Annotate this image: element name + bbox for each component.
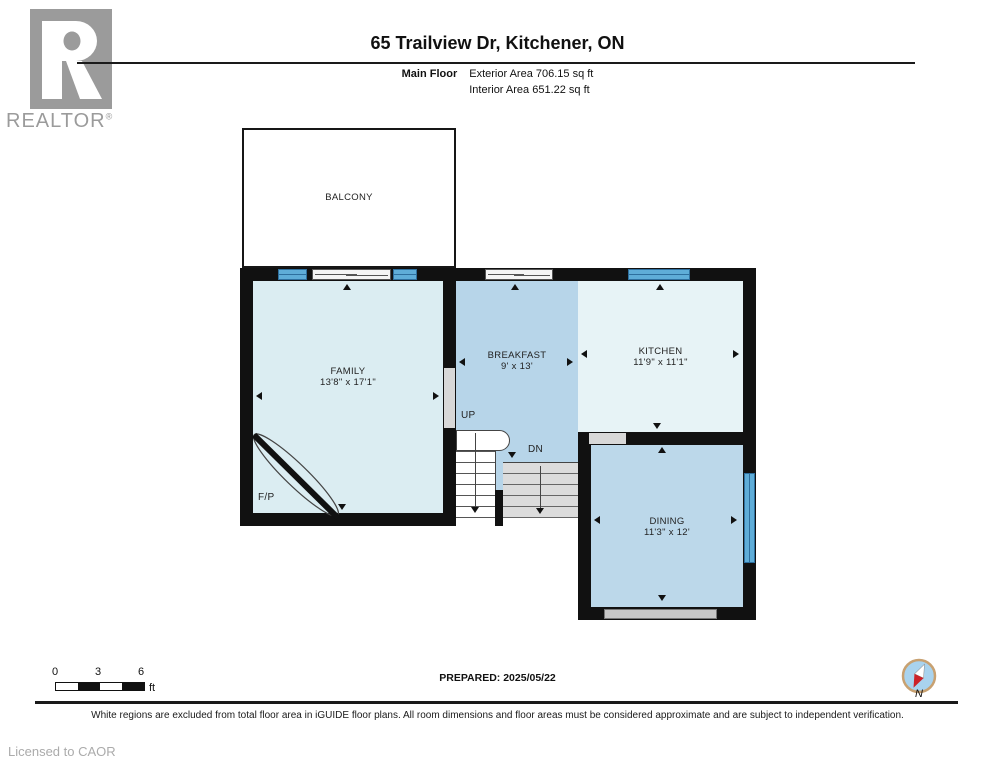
- floor-summary: Main Floor Exterior Area 706.15 sq ft In…: [0, 68, 995, 96]
- stairs-down-walkline: [540, 466, 541, 508]
- breakfast-label: BREAKFAST9' x 13': [456, 350, 578, 372]
- dining-arrow-left-icon: [594, 516, 600, 524]
- breakfast-arrow-right-icon: [567, 358, 573, 366]
- compass-north-label: N: [906, 688, 932, 700]
- family-label: FAMILY13'8" x 17'1": [253, 366, 443, 388]
- dining-window: [744, 473, 755, 563]
- stairs-up-walkline: [475, 433, 476, 507]
- kitchen-arrow-up-icon: [656, 284, 664, 290]
- exterior-area: Exterior Area 706.15 sq ft: [469, 68, 593, 80]
- down-label: DN: [528, 444, 543, 455]
- stairs-bullnose: [456, 430, 510, 451]
- balcony-label: BALCONY: [242, 192, 456, 203]
- family-arrow-down-icon: [338, 504, 346, 510]
- dining-label: DINING11'3" x 12': [591, 516, 743, 538]
- dining-arrow-up-icon: [658, 447, 666, 453]
- up-label: UP: [461, 410, 476, 421]
- wall-dining-left: [578, 432, 591, 620]
- footer-divider: [35, 701, 958, 704]
- opening-family-breakfast: [444, 368, 455, 428]
- floor-plan-page: REALTOR® 65 Trailview Dr, Kitchener, ON …: [0, 0, 995, 768]
- disclaimer-text: White regions are excluded from total fl…: [20, 710, 975, 721]
- page-title: 65 Trailview Dr, Kitchener, ON: [0, 33, 995, 54]
- prepared-date: PREPARED: 2025/05/22: [0, 672, 995, 684]
- family-window-right: [393, 269, 417, 280]
- header-divider: [77, 62, 915, 64]
- family-window-left: [278, 269, 307, 280]
- wall-kitchen-right: [743, 268, 756, 445]
- realtor-wordmark: REALTOR®: [6, 110, 113, 133]
- stair-wall-stub: [495, 490, 503, 526]
- kitchen-arrow-left-icon: [581, 350, 587, 358]
- interior-area: Interior Area 651.22 sq ft: [469, 84, 593, 96]
- dining-arrow-right-icon: [731, 516, 737, 524]
- dining-patio-slider: [604, 609, 717, 619]
- breakfast-arrow-down-icon: [508, 452, 516, 458]
- kitchen-arrow-right-icon: [733, 350, 739, 358]
- fireplace-icon: [250, 431, 345, 523]
- fireplace-label: F/P: [258, 492, 274, 503]
- kitchen-arrow-down-icon: [653, 423, 661, 429]
- stairs-up-arrow-icon: [471, 507, 479, 513]
- family-balcony-slider-door: [312, 269, 391, 280]
- kitchen-label: KITCHEN11'9" x 11'1": [578, 346, 743, 368]
- stairs-down-arrow-icon: [536, 508, 544, 514]
- family-arrow-right-icon: [433, 392, 439, 400]
- floor-label: Main Floor: [402, 68, 458, 96]
- registered-mark: ®: [106, 111, 114, 121]
- licensed-to: Licensed to CAOR: [8, 744, 116, 759]
- dining-arrow-down-icon: [658, 595, 666, 601]
- breakfast-slider-door: [485, 269, 553, 280]
- opening-kitchen-dining: [589, 433, 626, 444]
- breakfast-arrow-up-icon: [511, 284, 519, 290]
- family-arrow-left-icon: [256, 392, 262, 400]
- family-arrow-up-icon: [343, 284, 351, 290]
- kitchen-window: [628, 269, 690, 280]
- breakfast-arrow-left-icon: [459, 358, 465, 366]
